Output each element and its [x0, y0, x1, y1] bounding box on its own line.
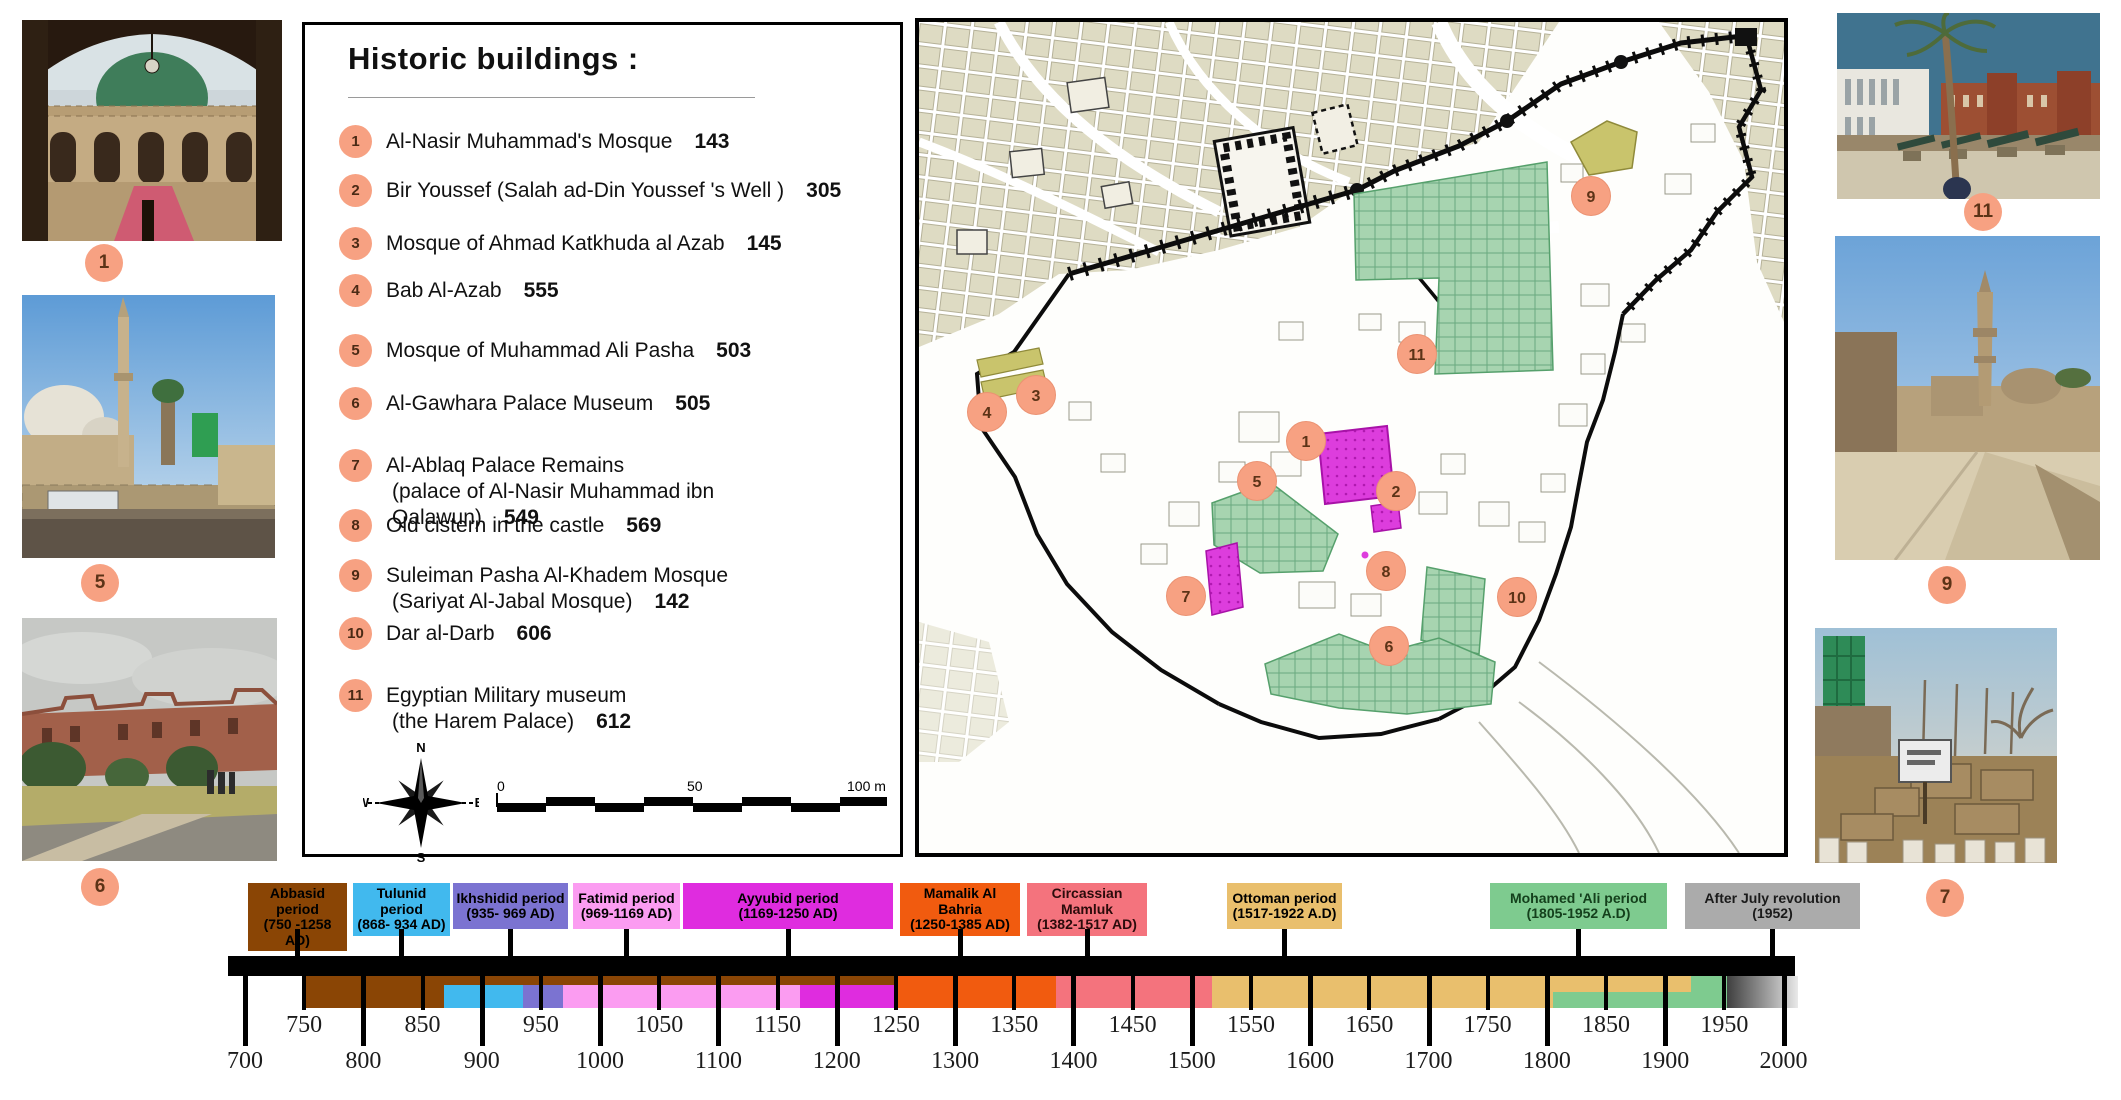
- legend-item-number: 7: [339, 449, 372, 482]
- svg-text:1: 1: [1302, 434, 1311, 451]
- photo-suleiman-pasha-mosque: [1835, 236, 2100, 560]
- palm-top: [152, 379, 184, 403]
- tick-1900: [1663, 958, 1668, 1046]
- photo-marker-6: 6: [81, 868, 119, 906]
- trees: [2055, 368, 2091, 388]
- period-box-fatimid-period: Fatimid period(969-1169 AD): [573, 883, 680, 929]
- svg-text:10: 10: [1508, 590, 1526, 607]
- tick-1850: [1604, 958, 1608, 1010]
- photo-marker-9-label: 9: [1942, 574, 1953, 596]
- photo-marker-9: 9: [1928, 566, 1966, 604]
- tick-label-1050: 1050: [635, 1012, 683, 1039]
- band-segment: [1553, 976, 1691, 992]
- map-marker-3: 3: [1017, 376, 1056, 415]
- period-box-ikhshidid-period: Ikhshidid period(935- 969 AD): [453, 883, 568, 929]
- legend-item-number: 8: [339, 509, 372, 542]
- minaret: [1977, 292, 1993, 406]
- legend-item-number: 5: [339, 334, 372, 367]
- photo-harem-palace-garden-image: [22, 618, 277, 861]
- legend-item-text: Mosque of Muhammad Ali Pasha503: [386, 338, 751, 364]
- map-marker-4: 4: [968, 393, 1007, 432]
- tick-label-1150: 1150: [754, 1012, 801, 1039]
- photo-marker-1-label: 1: [99, 252, 110, 274]
- tick-1800: [1545, 958, 1550, 1046]
- photo-citadel-view: [22, 295, 275, 558]
- photo-military-museum-cannons-image: [1837, 13, 2100, 199]
- stone-wall-left: [1835, 332, 1897, 452]
- map-marker-10: 10: [1498, 578, 1537, 617]
- legend-item-text: Old cistern in the castle569: [386, 513, 661, 539]
- map-marker-2: 2: [1377, 472, 1416, 511]
- svg-text:7: 7: [1182, 589, 1191, 606]
- legend-item-number: 1: [339, 125, 372, 158]
- legend-item-2: 2Bir Youssef (Salah ad-Din Youssef 's We…: [339, 178, 841, 207]
- legend-item-value: 555: [524, 279, 559, 302]
- legend-item-number: 10: [339, 617, 372, 650]
- period-box-ottoman-period: Ottoman period(1517-1922 A.D): [1227, 883, 1342, 929]
- period-connector: [1282, 929, 1287, 958]
- tick-1050: [657, 958, 661, 1010]
- tick-label-1400: 1400: [1049, 1048, 1097, 1075]
- tick-1650: [1367, 958, 1371, 1010]
- map-marker-8: 8: [1367, 552, 1406, 591]
- tick-1450: [1131, 958, 1135, 1010]
- legend-title-underline: [348, 97, 755, 98]
- svg-text:3: 3: [1032, 388, 1041, 405]
- legend-item-number: 4: [339, 274, 372, 307]
- tick-label-700: 700: [227, 1048, 263, 1075]
- region-dot: [1362, 552, 1369, 559]
- person-silhouette: [142, 200, 154, 241]
- legend-item-4: 4Bab Al-Azab555: [339, 278, 559, 307]
- legend-item-text: Egyptian Military museum(the Harem Palac…: [386, 683, 631, 735]
- photo-military-museum-cannons: [1837, 13, 2100, 199]
- tick-1600: [1308, 958, 1313, 1046]
- svg-text:5: 5: [1253, 474, 1262, 491]
- period-connector: [399, 929, 404, 958]
- legend-item-6: 6Al-Gawhara Palace Museum505: [339, 391, 710, 420]
- svg-text:2: 2: [1392, 484, 1401, 501]
- tick-label-1300: 1300: [931, 1048, 979, 1075]
- tick-label-1700: 1700: [1405, 1048, 1453, 1075]
- tick-1100: [716, 958, 721, 1046]
- tick-1300: [953, 958, 958, 1046]
- tick-label-1350: 1350: [990, 1012, 1038, 1039]
- tick-1750: [1486, 958, 1490, 1010]
- legend-item-number: 9: [339, 559, 372, 592]
- map-marker-7: 7: [1167, 577, 1206, 616]
- scale-bar-segments: [497, 797, 887, 812]
- region-al-ablaq-palace: [1206, 543, 1243, 615]
- scale-bar: 0 50 100 m: [495, 777, 895, 827]
- photo-suleiman-pasha-mosque-image: [1835, 236, 2100, 560]
- compass-n-label: N: [416, 743, 425, 755]
- period-connector: [1576, 929, 1581, 958]
- map-marker-6: 6: [1370, 627, 1409, 666]
- svg-text:9: 9: [1587, 189, 1596, 206]
- tick-label-1600: 1600: [1286, 1048, 1334, 1075]
- tick-label-1800: 1800: [1523, 1048, 1571, 1075]
- tick-label-1000: 1000: [576, 1048, 624, 1075]
- legend-item-value: 612: [596, 710, 631, 733]
- legend-title: Historic buildings :: [348, 41, 639, 77]
- svg-text:6: 6: [1385, 639, 1394, 656]
- period-box-ayyubid-period: Ayyubid period(1169-1250 AD): [683, 883, 893, 929]
- svg-text:4: 4: [983, 405, 992, 422]
- tick-1400: [1071, 958, 1076, 1046]
- band-segment: [896, 976, 1056, 1008]
- period-box-mohamed-ali-period: Mohamed 'Ali period(1805-1952 A.D): [1490, 883, 1667, 929]
- scale-50-label: 50: [687, 778, 703, 794]
- tick-label-1550: 1550: [1227, 1012, 1275, 1039]
- period-connector: [958, 929, 963, 958]
- legend-item-9: 9Suleiman Pasha Al-Khadem Mosque(Sariyat…: [339, 563, 728, 615]
- period-connector: [624, 929, 629, 958]
- photo-marker-11-label: 11: [1973, 201, 1993, 223]
- tick-1000: [598, 958, 603, 1046]
- map-marker-11: 11: [1398, 335, 1437, 374]
- citadel-map: 1234567891011: [915, 18, 1788, 857]
- tick-1250: [894, 958, 898, 1010]
- legend-item-value: 143: [694, 130, 729, 153]
- tick-label-1850: 1850: [1582, 1012, 1630, 1039]
- tick-label-1750: 1750: [1464, 1012, 1512, 1039]
- compass-rose-icon: N S E W: [363, 743, 479, 863]
- legend-panel: Historic buildings : 1Al-Nasir Muhammad'…: [302, 22, 903, 857]
- period-box-tulunid-period: Tulunid period(868- 934 AD): [353, 883, 450, 936]
- tick-2000: [1782, 958, 1787, 1046]
- legend-item-text: Bir Youssef (Salah ad-Din Youssef 's Wel…: [386, 178, 841, 204]
- roads-southeast: [1479, 662, 1739, 853]
- tick-label-1100: 1100: [695, 1048, 742, 1075]
- legend-item-1: 1Al-Nasir Muhammad's Mosque143: [339, 129, 729, 158]
- legend-item-value: 503: [716, 339, 751, 362]
- svg-text:11: 11: [1409, 347, 1426, 364]
- tick-1150: [776, 958, 780, 1010]
- map-marker-9: 9: [1572, 177, 1611, 216]
- photo-al-nasir-courtyard-image: [22, 20, 282, 241]
- legend-item-number: 2: [339, 174, 372, 207]
- legend-item-5: 5Mosque of Muhammad Ali Pasha503: [339, 338, 751, 367]
- compass-w-label: W: [363, 795, 370, 810]
- legend-item-text: Mosque of Ahmad Katkhuda al Azab145: [386, 231, 782, 257]
- legend-item-text: Al-Gawhara Palace Museum505: [386, 391, 710, 417]
- minaret: [118, 317, 129, 467]
- tick-1700: [1427, 958, 1432, 1046]
- map-marker-1: 1: [1287, 422, 1326, 461]
- tick-1500: [1190, 958, 1195, 1046]
- compass-s-label: S: [417, 850, 426, 863]
- legend-item-8: 8Old cistern in the castle569: [339, 513, 661, 542]
- photo-marker-5-label: 5: [95, 572, 106, 594]
- tick-1200: [835, 958, 840, 1046]
- period-connector: [1085, 929, 1090, 958]
- legend-item-10: 10Dar al-Darb606: [339, 621, 552, 650]
- map-marker-5: 5: [1238, 462, 1277, 501]
- legend-item-value: 606: [517, 622, 552, 645]
- compass-e-label: E: [475, 795, 479, 810]
- citadel-map-drawing: 1234567891011: [919, 22, 1784, 853]
- tick-label-750: 750: [286, 1012, 322, 1039]
- tick-label-850: 850: [405, 1012, 441, 1039]
- legend-item-number: 6: [339, 387, 372, 420]
- tick-label-950: 950: [523, 1012, 559, 1039]
- photo-citadel-view-image: [22, 295, 275, 558]
- period-connector: [1770, 929, 1775, 958]
- legend-item-value: 505: [675, 392, 710, 415]
- photo-marker-6-label: 6: [95, 876, 106, 898]
- green-water-tank: [192, 413, 218, 457]
- photo-marker-7: 7: [1926, 879, 1964, 917]
- tick-label-1950: 1950: [1700, 1012, 1748, 1039]
- tick-950: [539, 958, 543, 1010]
- band-segment: [800, 985, 896, 1008]
- period-connector: [295, 929, 300, 958]
- tick-750: [302, 958, 306, 1010]
- scale-100-label: 100 m: [847, 778, 886, 794]
- band-segment: [523, 985, 563, 1008]
- photo-harem-palace-garden: [22, 618, 277, 861]
- period-connector: [508, 929, 513, 958]
- tick-1350: [1012, 958, 1016, 1010]
- period-box-circassian-mamluk: Circassian Mamluk(1382-1517 AD): [1027, 883, 1147, 936]
- tick-label-1650: 1650: [1345, 1012, 1393, 1039]
- band-segment: [1727, 976, 1798, 1008]
- legend-item-text: Suleiman Pasha Al-Khadem Mosque(Sariyat …: [386, 563, 728, 615]
- legend-item-text: Bab Al-Azab555: [386, 278, 559, 304]
- photo-marker-5: 5: [81, 564, 119, 602]
- legend-item-value: 305: [806, 179, 841, 202]
- people-silhouettes: [207, 770, 235, 794]
- photo-marker-7-label: 7: [1940, 887, 1951, 909]
- legend-item-value: 145: [747, 232, 782, 255]
- period-box-mamalik-al-bahria: Mamalik Al Bahria(1250-1385 AD): [900, 883, 1020, 936]
- hanging-lamp: [145, 59, 159, 73]
- tick-label-2000: 2000: [1760, 1048, 1808, 1075]
- period-connector: [786, 929, 791, 958]
- tick-1550: [1249, 958, 1253, 1010]
- tick-label-900: 900: [464, 1048, 500, 1075]
- photo-marker-1: 1: [85, 244, 123, 282]
- legend-item-value: 569: [626, 514, 661, 537]
- photo-al-ablaq-ruins-image: [1815, 628, 2057, 863]
- legend-item-3: 3Mosque of Ahmad Katkhuda al Azab145: [339, 231, 782, 260]
- tick-label-1200: 1200: [813, 1048, 861, 1075]
- band-segment: [444, 976, 896, 985]
- legend-item-number: 3: [339, 227, 372, 260]
- photo-al-nasir-courtyard: [22, 20, 282, 241]
- tick-900: [480, 958, 485, 1046]
- legend-item-11: 11Egyptian Military museum(the Harem Pal…: [339, 683, 631, 735]
- tick-label-1450: 1450: [1109, 1012, 1157, 1039]
- tick-label-1500: 1500: [1168, 1048, 1216, 1075]
- legend-item-value: 142: [654, 590, 689, 613]
- legend-item-number: 11: [339, 679, 372, 712]
- region-military-museum: [1354, 162, 1553, 374]
- legend-item-text: Dar al-Darb606: [386, 621, 552, 647]
- tick-label-800: 800: [345, 1048, 381, 1075]
- tick-850: [421, 958, 425, 1010]
- tick-700: [243, 958, 248, 1046]
- tick-800: [361, 958, 366, 1046]
- tick-1950: [1722, 958, 1726, 1010]
- band-segment: [1212, 976, 1553, 1008]
- stone-dome: [2001, 368, 2061, 404]
- photo-marker-11: 11: [1964, 193, 2002, 231]
- period-box-after-july-revolution: After July revolution(1952): [1685, 883, 1860, 929]
- scale-0-label: 0: [497, 778, 505, 794]
- photo-al-ablaq-ruins: [1815, 628, 2057, 863]
- legend-item-text: Al-Nasir Muhammad's Mosque143: [386, 129, 729, 155]
- tick-label-1900: 1900: [1641, 1048, 1689, 1075]
- svg-text:8: 8: [1382, 564, 1391, 581]
- tick-label-1250: 1250: [872, 1012, 920, 1039]
